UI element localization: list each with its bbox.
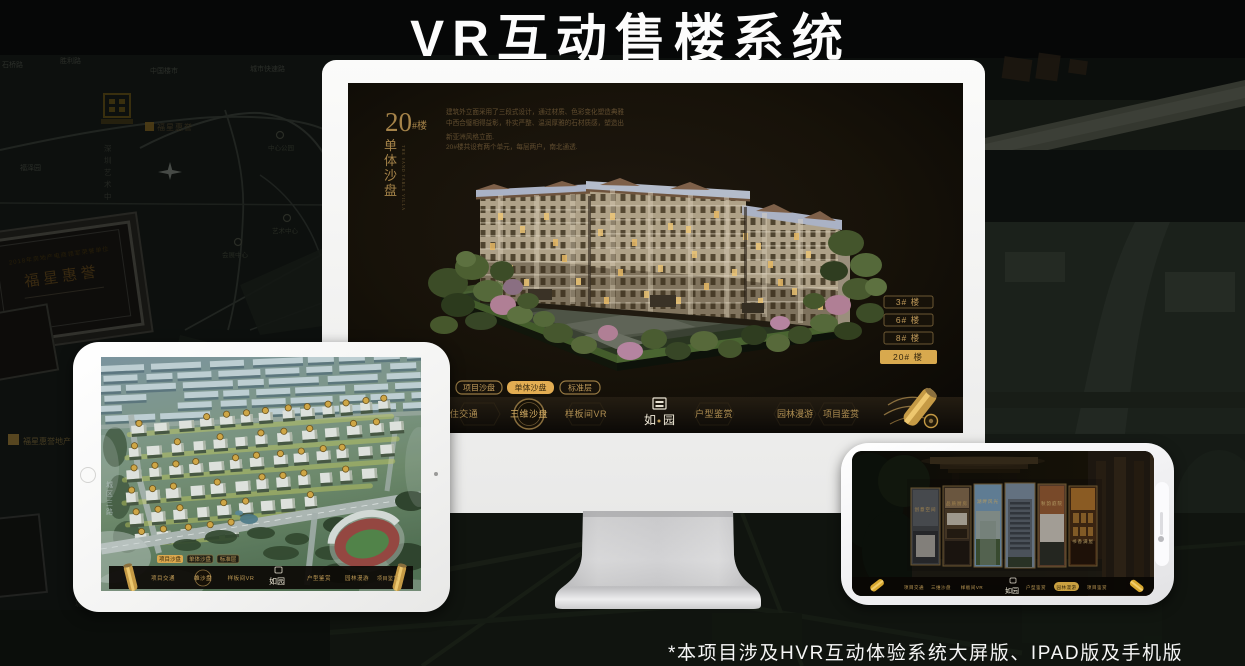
svg-text:中: 中 bbox=[104, 191, 112, 201]
svg-text:项目鉴赏: 项目鉴赏 bbox=[377, 575, 399, 582]
svg-text:样板间VR: 样板间VR bbox=[961, 584, 984, 591]
svg-text:项目交通: 项目交通 bbox=[904, 584, 924, 591]
svg-text:园: 园 bbox=[663, 413, 675, 427]
svg-text:艺术中心: 艺术中心 bbox=[272, 226, 299, 235]
svg-text:项目沙盘: 项目沙盘 bbox=[463, 383, 495, 393]
svg-text:园林漫游: 园林漫游 bbox=[345, 574, 369, 582]
svg-text:样板间VR: 样板间VR bbox=[565, 408, 607, 419]
svg-text:如: 如 bbox=[644, 412, 656, 427]
svg-text:圳: 圳 bbox=[104, 155, 112, 165]
svg-text:6# 楼: 6# 楼 bbox=[896, 315, 920, 325]
svg-text:20: 20 bbox=[385, 107, 412, 137]
svg-text:中心公园: 中心公园 bbox=[268, 143, 294, 152]
svg-text:8# 楼: 8# 楼 bbox=[896, 333, 920, 343]
svg-text:如园: 如园 bbox=[269, 576, 285, 586]
svg-text:体: 体 bbox=[384, 153, 397, 168]
svg-text:单体沙盘: 单体沙盘 bbox=[515, 383, 547, 393]
svg-text:标准层: 标准层 bbox=[568, 383, 592, 393]
svg-text:新亚洲风格立面.: 新亚洲风格立面. bbox=[446, 132, 494, 141]
svg-text:住交通: 住交通 bbox=[450, 408, 479, 419]
svg-text:园林漫游: 园林漫游 bbox=[1057, 584, 1077, 591]
svg-text:项目沙盘: 项目沙盘 bbox=[159, 555, 182, 563]
svg-text:项目交通: 项目交通 bbox=[151, 574, 175, 582]
svg-text:#楼: #楼 bbox=[412, 119, 427, 132]
svg-text:三维沙盘: 三维沙盘 bbox=[931, 584, 951, 591]
svg-text:园林漫游: 园林漫游 bbox=[777, 408, 813, 419]
svg-text:THE SAND TABLE VILLA: THE SAND TABLE VILLA bbox=[401, 145, 406, 211]
svg-text:福星惠誉: 福星惠誉 bbox=[157, 122, 193, 132]
svg-text:20# 楼: 20# 楼 bbox=[893, 352, 923, 362]
svg-text:3# 楼: 3# 楼 bbox=[896, 297, 920, 307]
svg-text:福星惠誉地产: 福星惠誉地产 bbox=[23, 436, 71, 446]
svg-text:维沙盘: 维沙盘 bbox=[194, 574, 212, 582]
svg-text:艺: 艺 bbox=[104, 168, 112, 177]
svg-text:20#楼共设有两个单元，每层两户，南北通透.: 20#楼共设有两个单元，每层两户，南北通透. bbox=[446, 142, 578, 151]
svg-text:单: 单 bbox=[384, 138, 397, 153]
svg-text:项目鉴赏: 项目鉴赏 bbox=[823, 408, 859, 419]
svg-text:三维沙盘: 三维沙盘 bbox=[510, 408, 548, 419]
svg-text:盘: 盘 bbox=[384, 183, 397, 198]
svg-text:项目鉴赏: 项目鉴赏 bbox=[1087, 584, 1107, 591]
svg-text:单体沙盘: 单体沙盘 bbox=[189, 555, 212, 563]
svg-text:标准层: 标准层 bbox=[220, 555, 237, 563]
svg-text:如园: 如园 bbox=[1005, 586, 1019, 595]
svg-text:建筑外立面采用了三段式设计，通过材质、色彩变化塑造典雅: 建筑外立面采用了三段式设计，通过材质、色彩变化塑造典雅 bbox=[446, 107, 624, 116]
svg-text:户型鉴赏: 户型鉴赏 bbox=[1026, 584, 1046, 591]
svg-text:户型鉴赏: 户型鉴赏 bbox=[695, 408, 733, 419]
svg-text:户型鉴赏: 户型鉴赏 bbox=[307, 574, 331, 582]
svg-text:深: 深 bbox=[104, 144, 112, 153]
svg-text:中西合璧相得益彰，朴实严整、温润厚雅的石材质感，塑造出: 中西合璧相得益彰，朴实严整、温润厚雅的石材质感，塑造出 bbox=[446, 118, 624, 127]
svg-text:沙: 沙 bbox=[384, 168, 397, 183]
svg-text:福泽园: 福泽园 bbox=[20, 163, 41, 172]
svg-text:术: 术 bbox=[104, 179, 112, 189]
svg-text:样板间VR: 样板间VR bbox=[228, 574, 255, 582]
svg-text:会展中心: 会展中心 bbox=[222, 250, 249, 259]
